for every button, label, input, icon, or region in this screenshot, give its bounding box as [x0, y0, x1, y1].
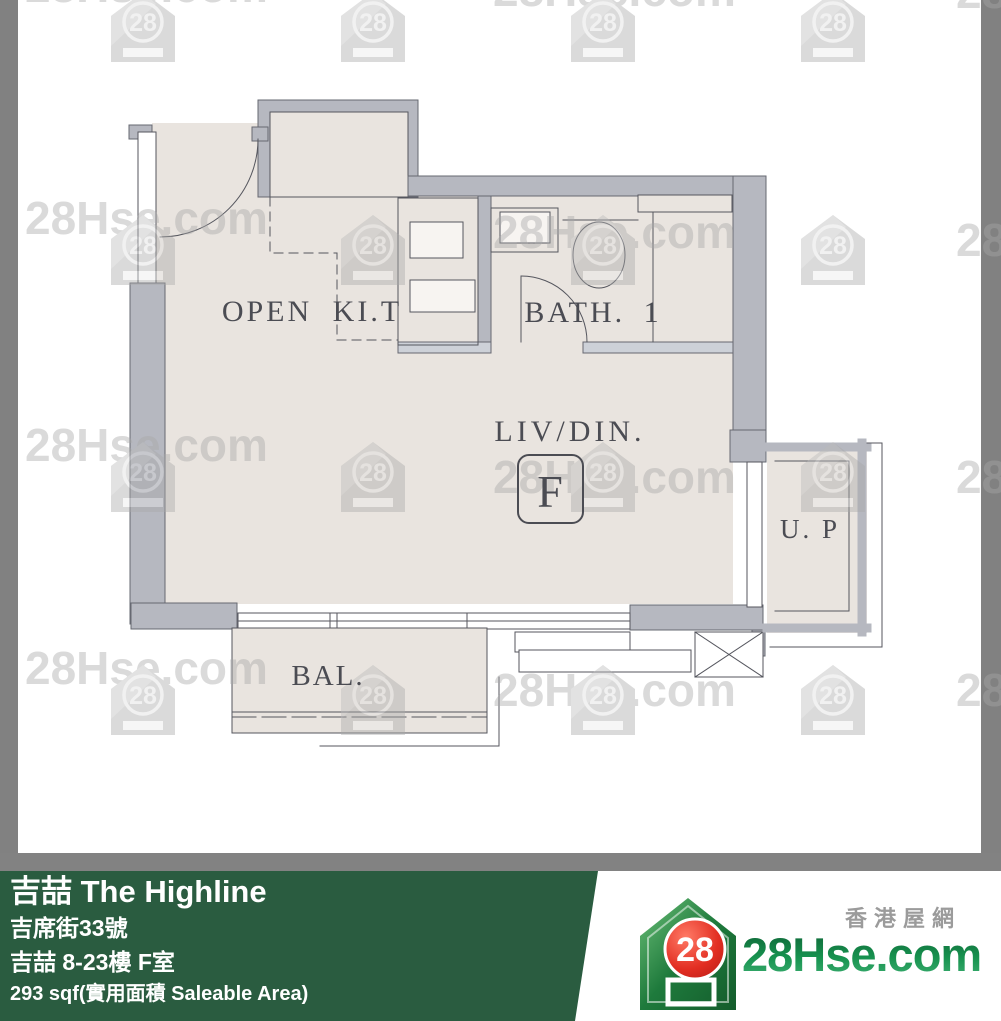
logo-site-name: 28Hse.com [742, 927, 981, 982]
building-address: 吉席街33號 [10, 911, 308, 945]
floor-plan: 28 [0, 0, 1001, 871]
watermark-house-icon [801, 0, 865, 62]
room-label-bath: BATH. 1 [524, 296, 661, 329]
room-label-utility-platform: U. P [780, 514, 840, 544]
watermark-text: 28Hse.com [956, 451, 1001, 503]
watermark-house-icon [801, 665, 865, 735]
watermark-house-icon [571, 0, 635, 62]
frame-border-left [0, 0, 18, 871]
room-label-balcony: BAL. [291, 660, 364, 692]
property-info: 吉喆 The Highline 吉席街33號 吉喆 8-23樓 F室 293 s… [10, 873, 308, 1010]
building-name: 吉喆 The Highline [10, 873, 308, 911]
watermark-house-icon [801, 215, 865, 285]
room-label-open-kitchen: OPEN KI.T [222, 295, 402, 328]
logo-tagline: 香港屋網 [845, 901, 961, 933]
watermark-text: 28Hse.com [956, 214, 1001, 266]
unit-letter: F [537, 466, 563, 517]
listing-floorplan-image: 28 [0, 0, 1001, 1021]
logo-badge: 28 [676, 931, 714, 969]
saleable-area: 293 sqf(實用面積 Saleable Area) [10, 979, 308, 1010]
frame-border-right [981, 0, 1001, 871]
divider-bar [0, 853, 1001, 871]
logo-house-icon: 28 [638, 896, 738, 1012]
watermark-house-icon [111, 0, 175, 62]
watermark-house-icon [341, 0, 405, 62]
unit-info: 吉喆 8-23樓 F室 [10, 945, 308, 979]
room-label-living-dining: LIV/DIN. [494, 415, 645, 448]
watermark-text: 28Hse.com [956, 0, 1001, 18]
site-logo: 28 28Hse.com 香港屋網 [630, 871, 1001, 1021]
watermark-text: 28Hse.com [956, 664, 1001, 716]
info-banner: 吉喆 The Highline 吉席街33號 吉喆 8-23樓 F室 293 s… [0, 871, 1001, 1021]
